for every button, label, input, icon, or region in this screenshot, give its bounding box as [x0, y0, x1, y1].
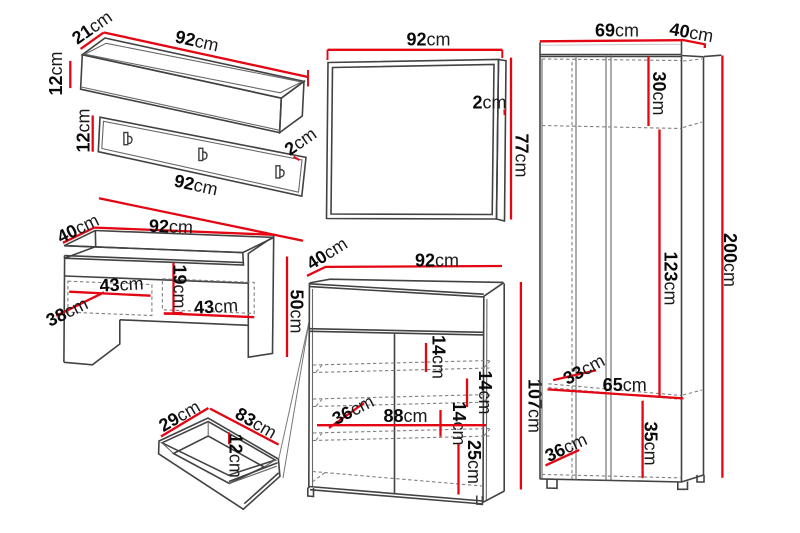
- svg-text:123cm: 123cm: [661, 251, 681, 305]
- svg-text:50cm: 50cm: [287, 289, 307, 333]
- svg-text:92cm: 92cm: [406, 30, 450, 50]
- svg-text:43cm: 43cm: [99, 273, 144, 295]
- svg-text:12cm: 12cm: [74, 108, 94, 152]
- svg-text:200cm: 200cm: [720, 233, 740, 287]
- svg-text:12cm: 12cm: [226, 434, 246, 478]
- svg-text:12cm: 12cm: [46, 51, 66, 95]
- svg-text:25cm: 25cm: [464, 440, 484, 484]
- svg-text:88cm: 88cm: [383, 406, 427, 426]
- svg-text:43cm: 43cm: [193, 295, 238, 317]
- svg-text:14cm: 14cm: [475, 370, 495, 414]
- svg-text:14cm: 14cm: [429, 335, 449, 379]
- svg-text:30cm: 30cm: [649, 71, 669, 115]
- svg-text:2cm: 2cm: [472, 93, 506, 113]
- svg-text:35cm: 35cm: [641, 422, 661, 466]
- svg-text:77cm: 77cm: [512, 133, 532, 177]
- svg-text:14cm: 14cm: [449, 401, 469, 445]
- svg-text:92cm: 92cm: [149, 216, 194, 238]
- svg-text:69cm: 69cm: [595, 21, 639, 41]
- svg-text:19cm: 19cm: [170, 264, 190, 308]
- svg-text:65cm: 65cm: [603, 375, 647, 395]
- svg-text:92cm: 92cm: [415, 251, 459, 271]
